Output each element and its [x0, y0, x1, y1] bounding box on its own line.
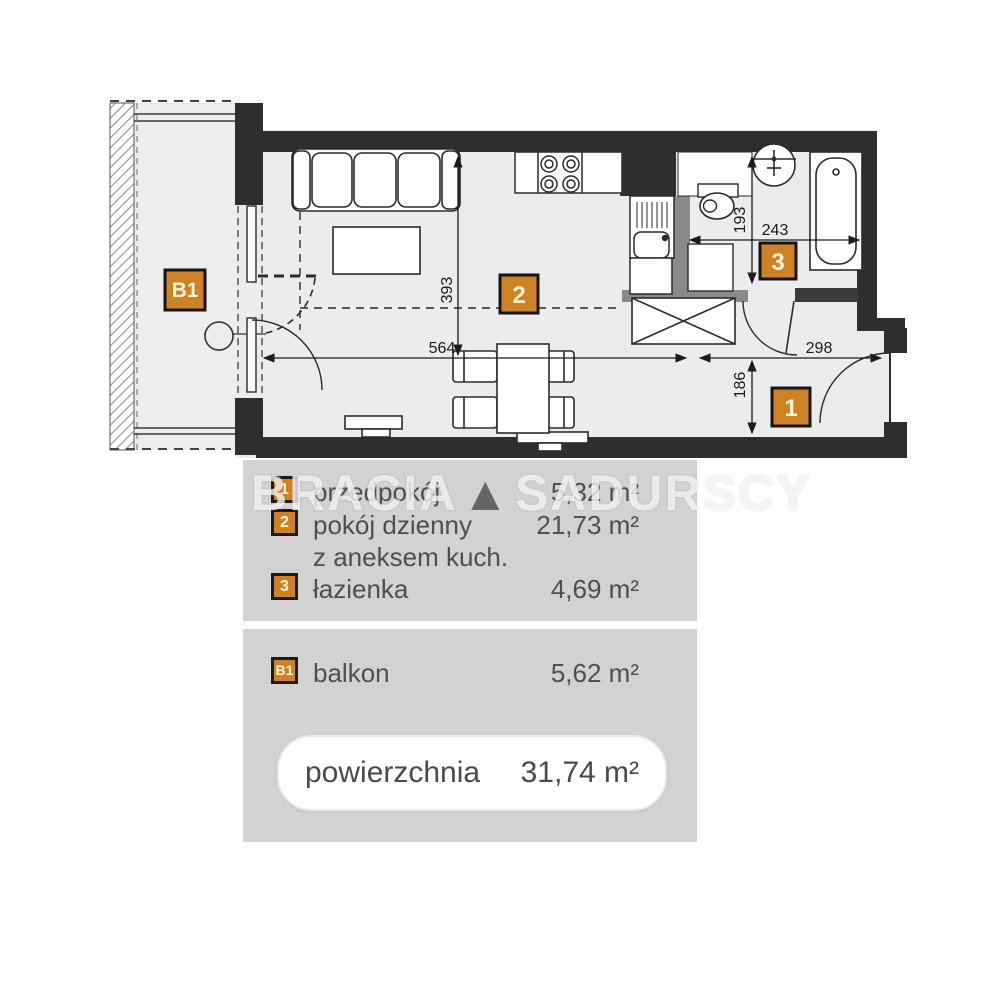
door-frame-bottom	[884, 422, 907, 458]
floor-plan-page: 564 298 393 193 186 243 B1 2 3 1 1 przed…	[0, 0, 1000, 1000]
wall-balcony-top	[235, 103, 263, 205]
legend-badge-3: 3	[271, 573, 298, 600]
washbasin-icon	[752, 144, 796, 186]
dim-193: 193	[732, 207, 749, 234]
bathtub-icon	[810, 152, 862, 270]
legend-label-hall: przedpokój	[313, 477, 440, 508]
wardrobe-crossed	[632, 298, 735, 344]
legend-badge-2: 2	[271, 509, 298, 536]
kitchen-cabinet	[630, 258, 672, 294]
legend-label-living: pokój dzienny	[313, 510, 472, 541]
legend-badge-1: 1	[271, 476, 298, 503]
sofa	[292, 149, 460, 211]
dim-393: 393	[439, 277, 456, 304]
legend-area-living: 21,73 m²	[536, 510, 639, 541]
legend-row-living: 2 pokój dzienny 21,73 m²	[243, 509, 697, 539]
legend-row-balcony: B1 balkon 5,62 m²	[243, 657, 697, 687]
badge-bathroom: 3	[771, 249, 784, 276]
badge-balcony: B1	[172, 279, 199, 302]
legend-row-living-line2: z aneksem kuch.	[243, 542, 697, 572]
dim-564: 564	[429, 340, 456, 357]
total-area-label: powierzchnia	[305, 756, 480, 790]
badge-living: 2	[512, 282, 525, 309]
dim-243: 243	[762, 222, 789, 239]
bath-cabinet	[688, 244, 733, 291]
wall-bath-south	[795, 288, 858, 302]
door-frame-top	[884, 328, 907, 353]
floor-plan: 564 298 393 193 186 243 B1 2 3 1	[0, 0, 1000, 470]
total-area-value: 31,74 m²	[521, 756, 639, 790]
dim-298: 298	[806, 340, 833, 357]
legend-badge-b1: B1	[271, 657, 298, 684]
legend-row-hall: 1 przedpokój 5,32 m²	[243, 476, 697, 506]
badge-hall: 1	[784, 395, 797, 422]
legend-rooms: 1 przedpokój 5,32 m² 2 pokój dzienny 21,…	[243, 460, 697, 621]
wall-kitchen-block	[620, 140, 676, 196]
legend-label-balcony: balkon	[313, 658, 390, 689]
coffee-table	[333, 227, 420, 274]
legend-area-hall: 5,32 m²	[551, 477, 639, 508]
legend-label-bathroom: łazienka	[313, 574, 408, 605]
legend-area-bathroom: 4,69 m²	[551, 574, 639, 605]
balcony-table	[205, 322, 233, 350]
balcony-window	[247, 206, 256, 282]
legend-area-balcony: 5,62 m²	[551, 658, 639, 689]
legend-row-bathroom: 3 łazienka 4,69 m²	[243, 573, 697, 603]
total-area-pill: powierzchnia 31,74 m²	[277, 735, 667, 811]
legend-balcony-total: B1 balkon 5,62 m² powierzchnia 31,74 m²	[243, 629, 697, 842]
legend-label-living-2: z aneksem kuch.	[313, 542, 508, 573]
dim-186: 186	[732, 372, 749, 399]
balcony-door-leaf	[247, 318, 256, 392]
